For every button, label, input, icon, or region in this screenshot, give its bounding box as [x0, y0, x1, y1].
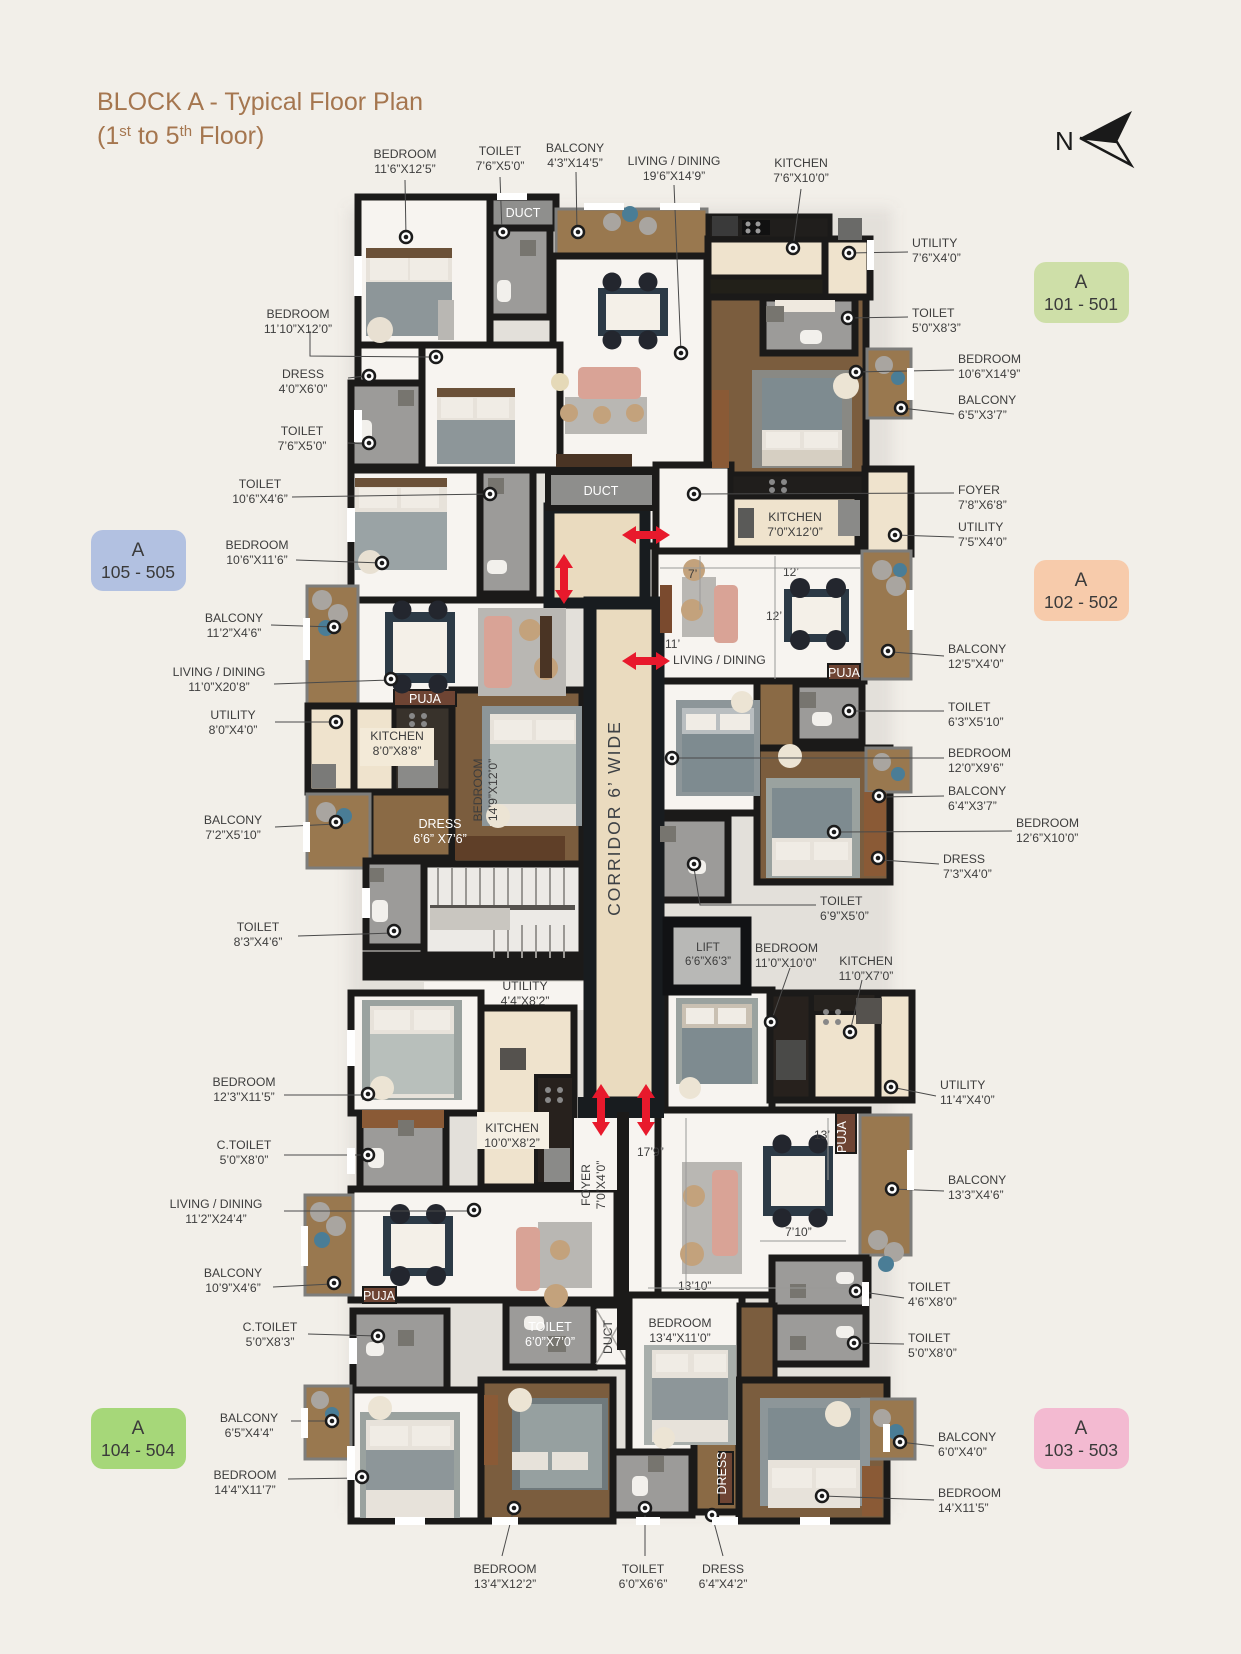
svg-text:TOILET7’6”X5’0”: TOILET7’6”X5’0” — [476, 144, 525, 173]
svg-text:BEDROOM12’3”X11’5”: BEDROOM12’3”X11’5” — [213, 1075, 276, 1104]
svg-text:A: A — [1075, 570, 1088, 591]
svg-text:BEDROOM10’6”X14’9”: BEDROOM10’6”X14’9” — [958, 352, 1021, 381]
svg-text:PUJA: PUJA — [409, 692, 442, 706]
svg-text:TOILET4’6”X8’0”: TOILET4’6”X8’0” — [908, 1280, 957, 1309]
svg-text:TOILET5’0”X8’0”: TOILET5’0”X8’0” — [908, 1331, 957, 1360]
svg-text:BEDROOM14’4”X11’7”: BEDROOM14’4”X11’7” — [214, 1468, 277, 1497]
svg-text:12’: 12’ — [766, 609, 782, 623]
svg-text:7’: 7’ — [688, 567, 697, 581]
svg-text:BEDROOM13’4”X11’0”: BEDROOM13’4”X11’0” — [649, 1316, 712, 1345]
svg-text:DUCT: DUCT — [584, 484, 619, 498]
svg-text:BEDROOM11’10”X12’0”: BEDROOM11’10”X12’0” — [264, 307, 332, 336]
svg-text:BALCONY11’2”X4’6”: BALCONY11’2”X4’6” — [205, 611, 263, 640]
svg-text:104 - 504: 104 - 504 — [101, 1440, 175, 1460]
svg-text:BLOCK A - Typical Floor Plan: BLOCK A - Typical Floor Plan — [97, 88, 423, 116]
svg-text:DUCT: DUCT — [506, 206, 541, 220]
svg-text:7’10”: 7’10” — [785, 1225, 812, 1239]
svg-text:BEDROOM12’6”X10’0”: BEDROOM12’6”X10’0” — [1016, 816, 1079, 845]
svg-text:C.TOILET5’0”X8’0”: C.TOILET5’0”X8’0” — [217, 1138, 272, 1167]
svg-text:TOILET10’6”X4’6”: TOILET10’6”X4’6” — [232, 477, 288, 506]
svg-text:KITCHEN8’0”X8’8”: KITCHEN8’0”X8’8” — [370, 729, 424, 758]
svg-text:A: A — [1075, 1418, 1088, 1439]
svg-text:BEDROOM14’9”X12’0”: BEDROOM14’9”X12’0” — [471, 759, 500, 822]
svg-text:BEDROOM12’0”X9’6”: BEDROOM12’0”X9’6” — [948, 746, 1011, 775]
svg-text:BALCONY13’3”X4’6”: BALCONY13’3”X4’6” — [948, 1173, 1006, 1202]
svg-text:17’9”: 17’9” — [637, 1145, 664, 1159]
svg-text:UTILITY7’6”X4’0”: UTILITY7’6”X4’0” — [912, 236, 961, 265]
svg-text:KITCHEN11’0”X7’0”: KITCHEN11’0”X7’0” — [839, 954, 894, 983]
svg-text:PUJA: PUJA — [363, 1289, 396, 1303]
svg-text:C.TOILET5’0”X8’3”: C.TOILET5’0”X8’3” — [243, 1320, 298, 1349]
svg-text:TOILET7’6”X5’0”: TOILET7’6”X5’0” — [278, 424, 327, 453]
svg-text:KITCHEN7’0”X12’0”: KITCHEN7’0”X12’0” — [767, 510, 823, 539]
svg-text:PUJA: PUJA — [828, 666, 861, 680]
svg-text:A: A — [1075, 272, 1088, 293]
svg-text:A: A — [132, 540, 145, 561]
svg-text:FOYER7’8”X6’8”: FOYER7’8”X6’8” — [958, 483, 1007, 512]
svg-text:BEDROOM13’4”X12’2”: BEDROOM13’4”X12’2” — [474, 1562, 537, 1591]
svg-text:11’: 11’ — [665, 637, 680, 651]
svg-text:CORRIDOR 6’ WIDE: CORRIDOR 6’ WIDE — [604, 720, 624, 916]
svg-text:105 - 505: 105 - 505 — [101, 562, 175, 582]
svg-text:BEDROOM11’6”X12’5”: BEDROOM11’6”X12’5” — [374, 147, 437, 176]
svg-text:N: N — [1055, 126, 1074, 156]
svg-text:UTILITY4’4”X8’2”: UTILITY4’4”X8’2” — [501, 979, 550, 1008]
svg-text:TOILET6’0”X7’0”: TOILET6’0”X7’0” — [525, 1320, 575, 1349]
svg-text:DRESS6’4”X4’2”: DRESS6’4”X4’2” — [699, 1562, 748, 1591]
svg-text:UTILITY8’0”X4’0”: UTILITY8’0”X4’0” — [209, 708, 258, 737]
svg-text:PUJA: PUJA — [835, 1120, 849, 1153]
svg-text:DRESS: DRESS — [715, 1451, 729, 1494]
svg-text:TOILET8’3”X4’6”: TOILET8’3”X4’6” — [234, 920, 283, 949]
svg-text:DUCT: DUCT — [601, 1320, 615, 1354]
svg-text:KITCHEN7’6”X10’0”: KITCHEN7’6”X10’0” — [773, 156, 829, 185]
svg-text:TOILET5’0”X8’3”: TOILET5’0”X8’3” — [912, 306, 961, 335]
svg-text:TOILET6’9”X5’0”: TOILET6’9”X5’0” — [820, 894, 869, 923]
svg-text:UTILITY7’5”X4’0”: UTILITY7’5”X4’0” — [958, 520, 1007, 549]
svg-text:LIVING / DINING: LIVING / DINING — [673, 653, 766, 667]
svg-text:BALCONY7’2”X5’10”: BALCONY7’2”X5’10” — [204, 813, 262, 842]
svg-text:BEDROOM10’6”X11’6”: BEDROOM10’6”X11’6” — [226, 538, 289, 567]
svg-text:BEDROOM11’0”X10’0”: BEDROOM11’0”X10’0” — [755, 941, 818, 970]
svg-text:A: A — [132, 1418, 145, 1439]
svg-text:FOYER7’0”X4’0”: FOYER7’0”X4’0” — [579, 1161, 608, 1210]
svg-text:KITCHEN10’0”X8’2”: KITCHEN10’0”X8’2” — [484, 1121, 540, 1150]
svg-text:BALCONY10’9”X4’6”: BALCONY10’9”X4’6” — [204, 1266, 262, 1295]
svg-text:BALCONY4’3”X14’5”: BALCONY4’3”X14’5” — [546, 141, 604, 170]
svg-text:13’10”: 13’10” — [678, 1279, 711, 1293]
svg-text:DRESS4’0”X6’0”: DRESS4’0”X6’0” — [279, 367, 328, 396]
svg-text:12’: 12’ — [783, 565, 799, 579]
svg-text:TOILET6’0”X6’6”: TOILET6’0”X6’6” — [619, 1562, 668, 1591]
svg-text:DRESS7’3”X4’0”: DRESS7’3”X4’0” — [943, 852, 992, 881]
svg-text:102 - 502: 102 - 502 — [1044, 592, 1118, 612]
svg-text:DRESS6’6” X7’6”: DRESS6’6” X7’6” — [413, 817, 467, 846]
svg-text:101 - 501: 101 - 501 — [1044, 294, 1118, 314]
svg-text:BALCONY6’5”X4’4”: BALCONY6’5”X4’4” — [220, 1411, 278, 1440]
svg-text:103 - 503: 103 - 503 — [1044, 1440, 1118, 1460]
svg-text:BALCONY12’5”X4’0”: BALCONY12’5”X4’0” — [948, 642, 1006, 671]
